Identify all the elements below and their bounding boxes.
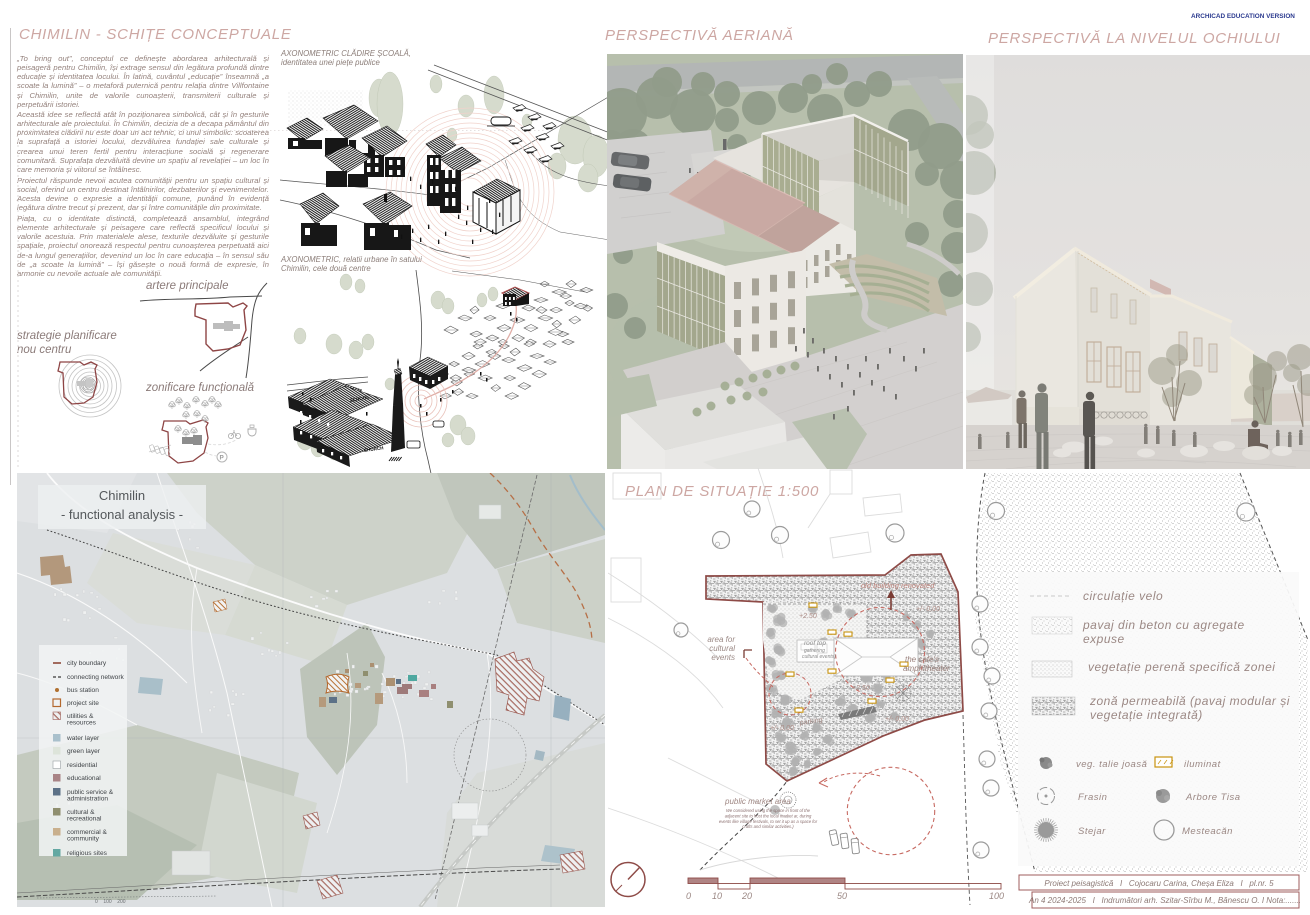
svg-text:recreational: recreational <box>67 816 102 823</box>
svg-text:city boundary: city boundary <box>67 660 107 667</box>
svg-text:religious sites: religious sites <box>67 850 108 857</box>
svg-text:100: 100 <box>989 891 1004 901</box>
svg-text:+/- 0,00: +/- 0,00 <box>770 725 794 732</box>
svg-text:administration: administration <box>67 796 108 803</box>
svg-text:An 4 2024-2025 I Indrumăto: An 4 2024-2025 I Indrumători arh. Szitar… <box>1028 896 1301 905</box>
svg-text:amphitheater: amphitheater <box>903 664 950 673</box>
svg-text:pavaj din beton cu agregate: pavaj din beton cu agregate <box>1082 618 1245 632</box>
svg-text:+2.50: +2.50 <box>799 613 817 620</box>
svg-text:the cafe's: the cafe's <box>905 655 939 664</box>
svg-text:resources: resources <box>67 720 97 727</box>
svg-text:- functional analysis -: - functional analysis - <box>61 507 183 522</box>
svg-text:Stejar: Stejar <box>1078 826 1106 837</box>
svg-text:0 100 200: 0 100 200 <box>95 899 126 905</box>
svg-text:iluminat: iluminat <box>1184 759 1221 770</box>
svg-text:+2.50: +2.50 <box>852 685 870 692</box>
svg-text:events like village festivals,: events like village festivals, to set it… <box>719 819 818 824</box>
svg-text:educational: educational <box>67 775 101 782</box>
svg-text:cultural: cultural <box>709 644 735 653</box>
svg-text:circulație velo: circulație velo <box>1083 589 1163 603</box>
svg-text:+/- 0,00: +/- 0,00 <box>916 606 940 613</box>
svg-text:project site: project site <box>67 700 99 707</box>
svg-text:Chimilin: Chimilin <box>99 488 145 503</box>
svg-text:vegetație perenă specifică zon: vegetație perenă specifică zonei <box>1088 660 1275 674</box>
svg-text:crafts and similar activities.: crafts and similar activities.) <box>742 824 794 829</box>
svg-text:water layer: water layer <box>66 735 100 742</box>
svg-text:Frasin: Frasin <box>1078 792 1107 803</box>
svg-text:vegetație integrată): vegetație integrată) <box>1090 708 1203 722</box>
svg-text:We considered using the space: We considered using the space in front o… <box>726 808 811 813</box>
svg-text:Proiect peisagistică I Co: Proiect peisagistică I Cojocaru Carina, … <box>1044 879 1274 888</box>
svg-text:expuse: expuse <box>1083 632 1125 646</box>
svg-text:Arbore Tisa: Arbore Tisa <box>1185 792 1241 803</box>
svg-text:events: events <box>711 653 735 662</box>
svg-text:roof top: roof top <box>804 640 826 647</box>
svg-text:veg. talie joasă: veg. talie joasă <box>1076 759 1147 770</box>
svg-text:cultural events): cultural events) <box>802 654 836 660</box>
svg-text:zonă permeabilă (pavaj modular: zonă permeabilă (pavaj modular și <box>1089 694 1290 708</box>
svg-text:public market area: public market area <box>724 797 791 806</box>
svg-text:adjacent site to host the loca: adjacent site to host the local market a… <box>725 813 812 818</box>
svg-text:residential: residential <box>67 762 98 769</box>
svg-text:Mesteacăn: Mesteacăn <box>1182 826 1233 837</box>
svg-text:community: community <box>67 836 100 843</box>
svg-text:bus station: bus station <box>67 687 99 694</box>
svg-text:10: 10 <box>712 891 722 901</box>
svg-text:20: 20 <box>741 891 752 901</box>
svg-text:area for: area for <box>707 635 735 644</box>
svg-text:old building renovated: old building renovated <box>861 581 935 590</box>
svg-text:0: 0 <box>686 891 691 901</box>
svg-text:P: P <box>220 455 225 462</box>
svg-text:green layer: green layer <box>67 748 101 755</box>
svg-text:50: 50 <box>837 891 847 901</box>
svg-text:connecting network: connecting network <box>67 674 125 681</box>
svg-text:+/- 0,00: +/- 0,00 <box>885 716 909 723</box>
